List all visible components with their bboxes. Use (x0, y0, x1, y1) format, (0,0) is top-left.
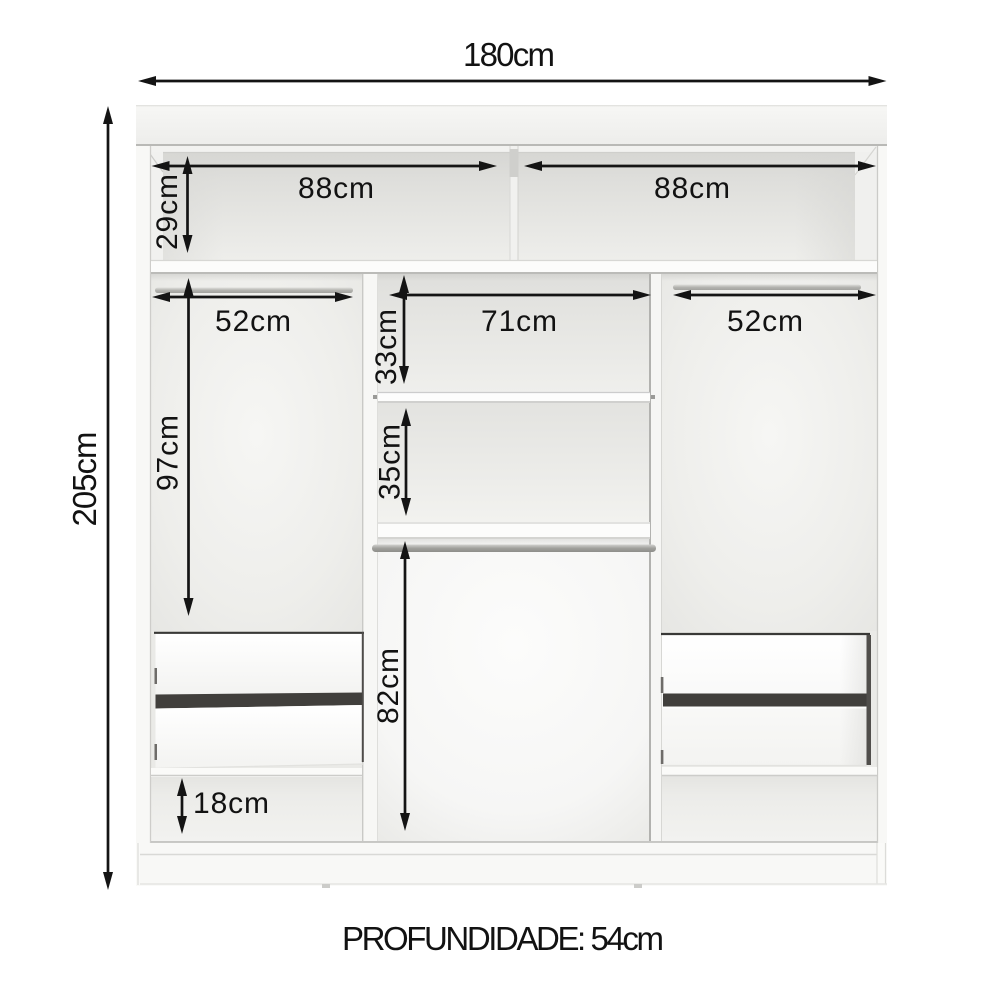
svg-text:PROFUNDIDADE: 54cm: PROFUNDIDADE: 54cm (342, 920, 664, 957)
svg-text:88cm: 88cm (654, 172, 730, 205)
svg-text:88cm: 88cm (298, 172, 374, 205)
svg-text:33cm: 33cm (370, 309, 403, 385)
svg-text:18cm: 18cm (193, 787, 269, 820)
svg-text:52cm: 52cm (727, 305, 803, 338)
svg-text:29cm: 29cm (151, 174, 184, 250)
svg-text:52cm: 52cm (215, 305, 291, 338)
svg-text:180cm: 180cm (463, 36, 555, 73)
svg-text:205cm: 205cm (66, 432, 103, 527)
svg-text:82cm: 82cm (372, 648, 405, 724)
svg-text:35cm: 35cm (374, 424, 407, 500)
svg-text:97cm: 97cm (152, 415, 185, 491)
svg-text:71cm: 71cm (481, 305, 557, 338)
